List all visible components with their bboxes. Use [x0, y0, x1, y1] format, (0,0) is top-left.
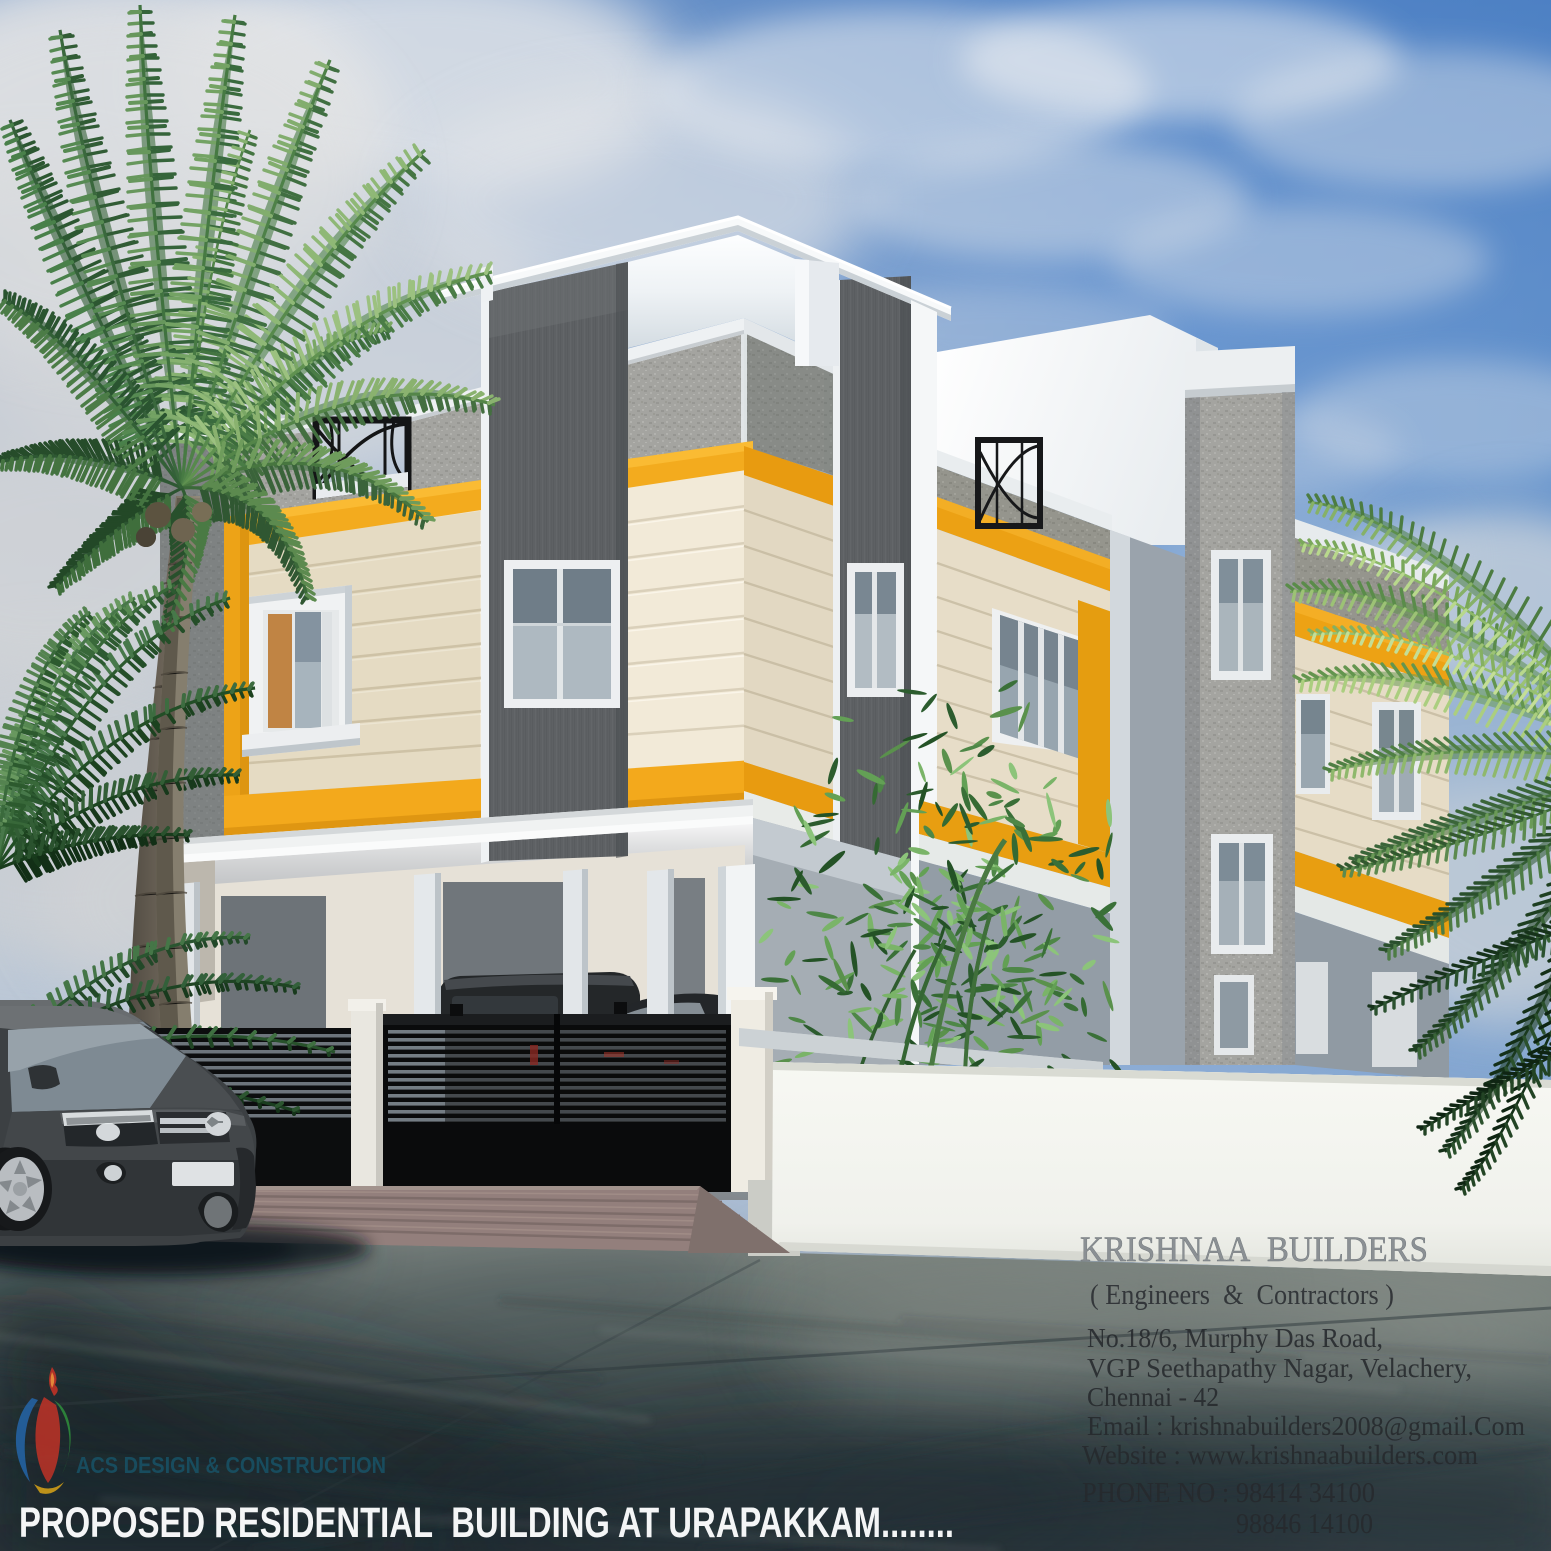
svg-text:ACS DESIGN & CONSTRUCTION: ACS DESIGN & CONSTRUCTION	[76, 1452, 386, 1478]
svg-text:( Engineers & Contractors ): ( Engineers & Contractors )	[1090, 1280, 1394, 1311]
svg-text:KRISHNAA BUILDERS: KRISHNAA BUILDERS	[1080, 1229, 1428, 1269]
svg-text:Chennai - 42: Chennai - 42	[1087, 1382, 1219, 1412]
svg-text:VGP Seethapathy Nagar, Velache: VGP Seethapathy Nagar, Velachery,	[1087, 1353, 1472, 1383]
svg-text:98846 14100: 98846 14100	[1236, 1509, 1373, 1540]
svg-text:PHONE NO : 98414 34100: PHONE NO : 98414 34100	[1082, 1478, 1375, 1509]
svg-text:Website : www.krishnaabuilders: Website : www.krishnaabuilders.com	[1082, 1440, 1478, 1470]
svg-text:PROPOSED RESIDENTIAL BUILDING: PROPOSED RESIDENTIAL BUILDING AT URAPAKK…	[19, 1499, 954, 1547]
svg-text:No.18/6, Murphy Das Road,: No.18/6, Murphy Das Road,	[1087, 1323, 1383, 1353]
svg-text:Email : krishnabuilders2008@gm: Email : krishnabuilders2008@gmail.Com	[1087, 1411, 1525, 1441]
